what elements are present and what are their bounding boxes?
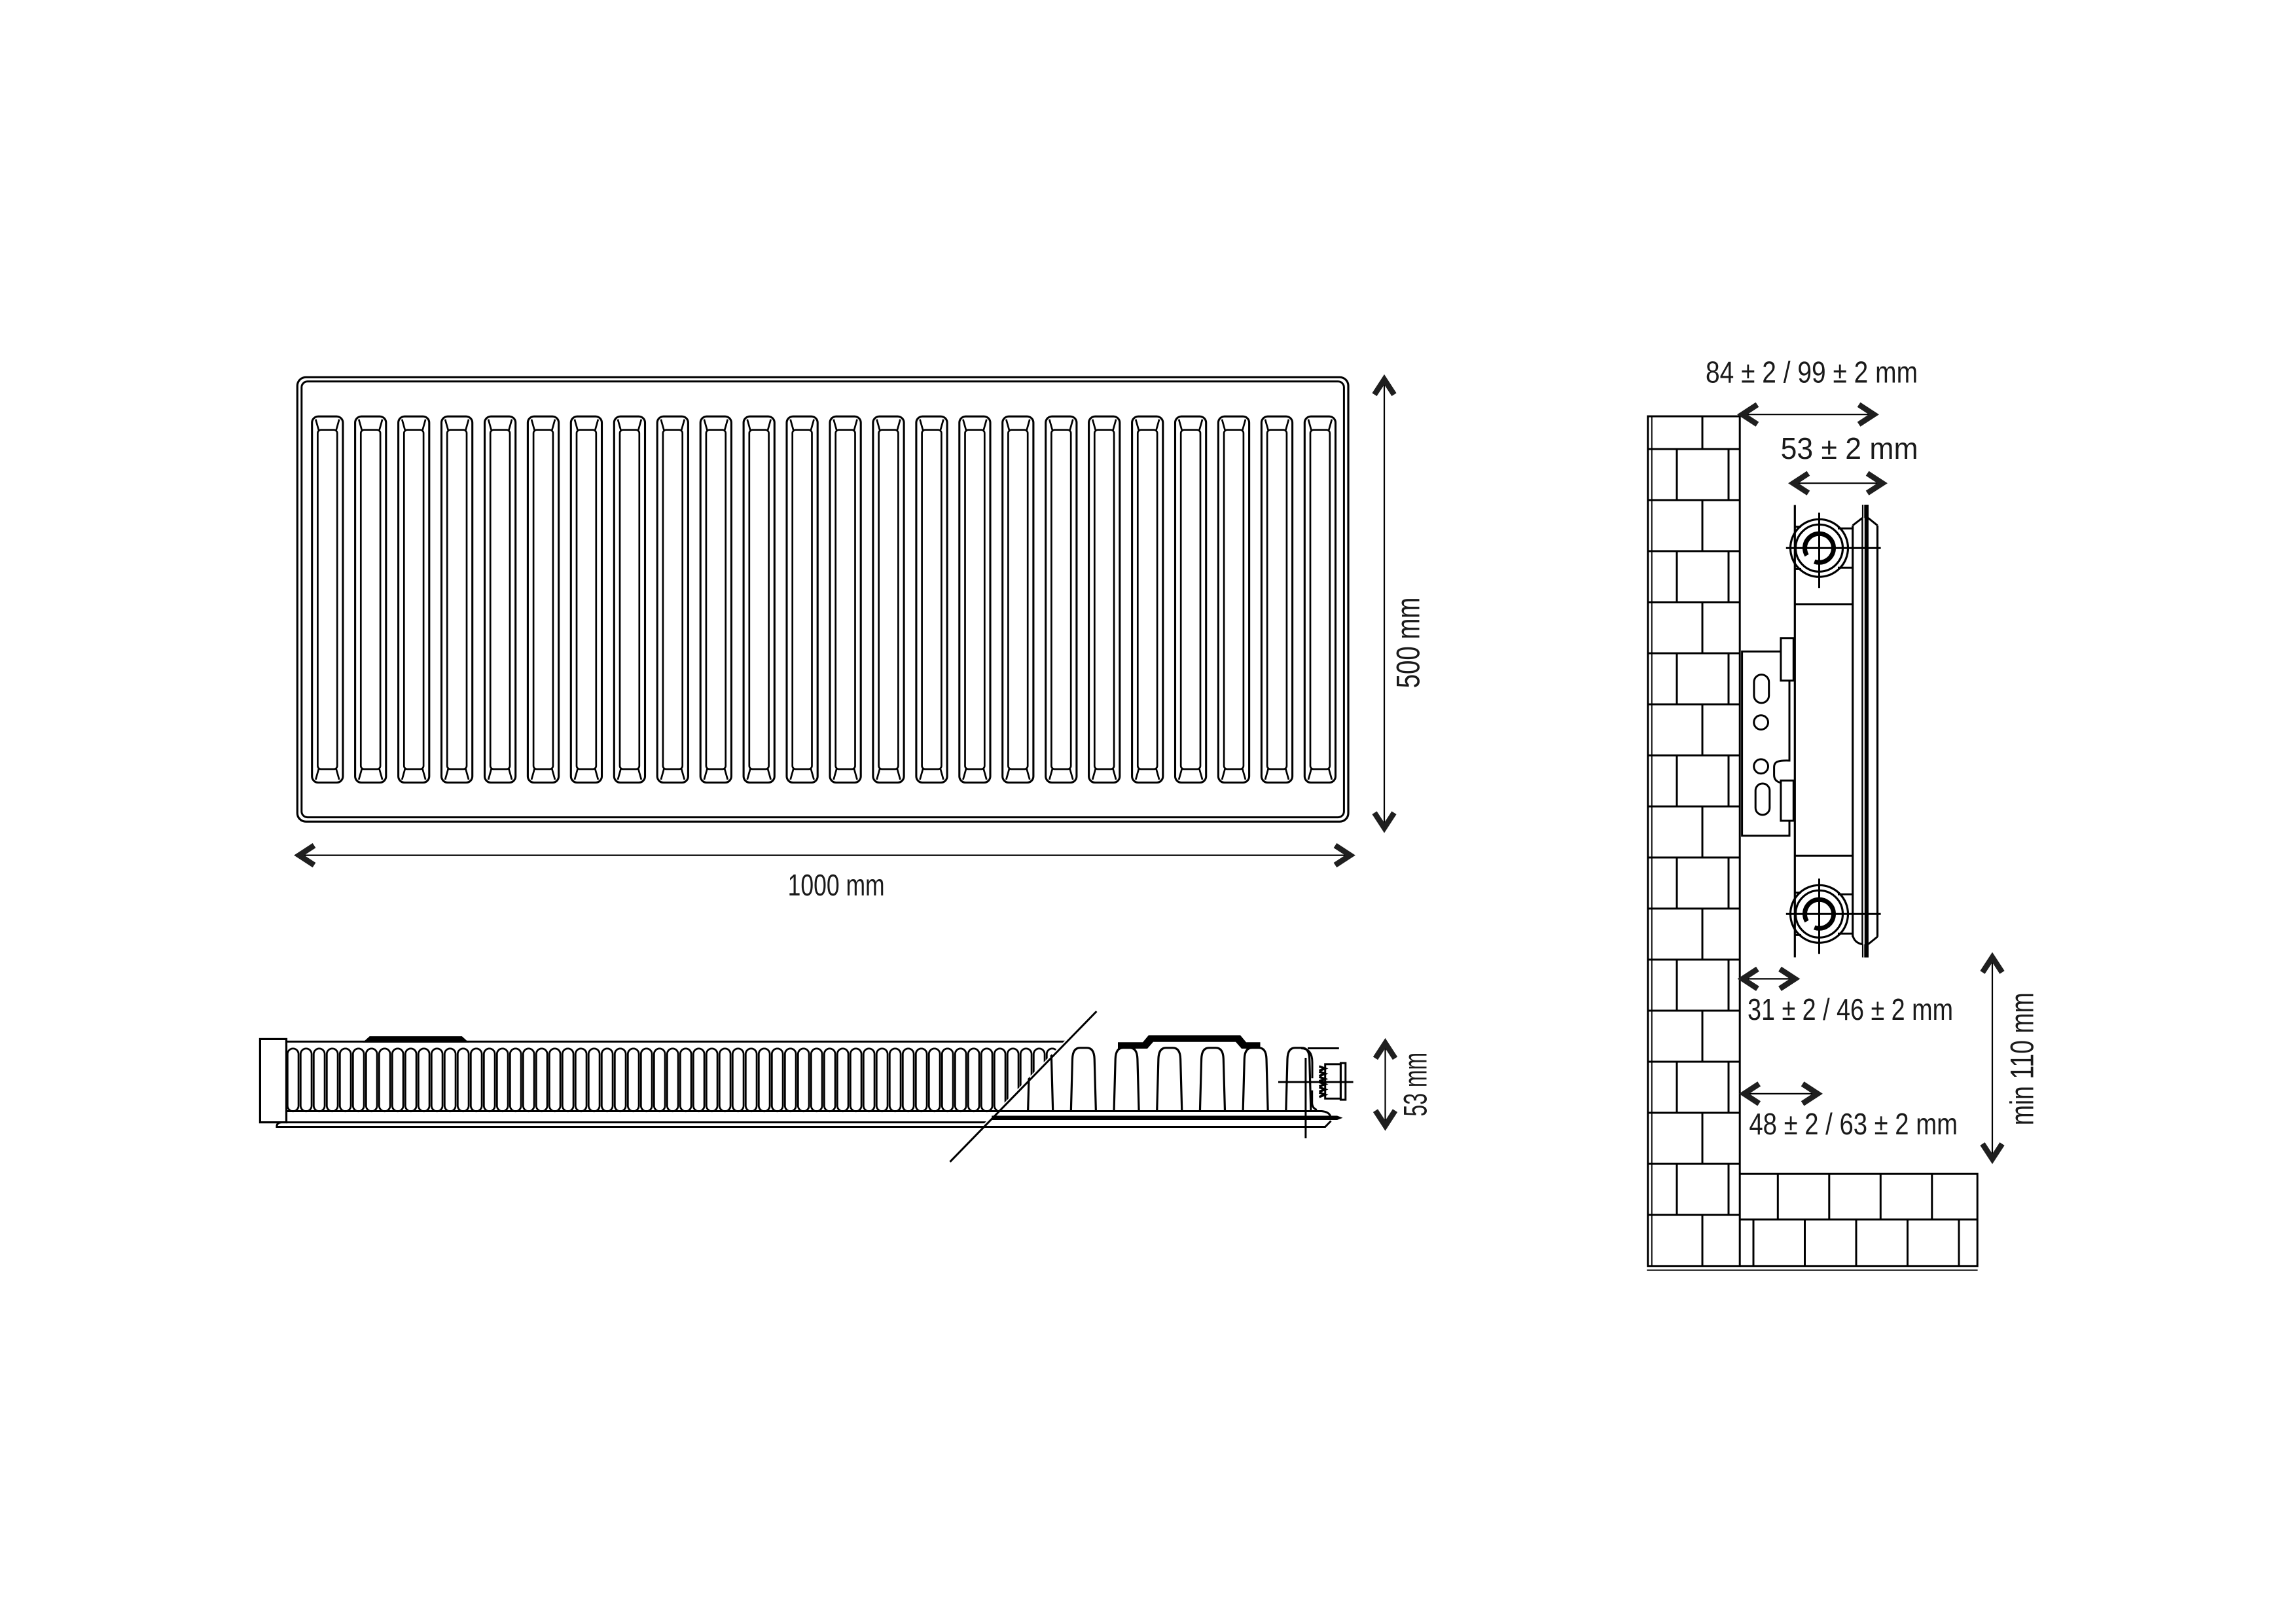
svg-text:53 ± 2 mm: 53 ± 2 mm xyxy=(1781,431,1918,465)
svg-text:53 mm: 53 mm xyxy=(1397,1053,1433,1117)
svg-text:84 ± 2 / 99 ± 2 mm: 84 ± 2 / 99 ± 2 mm xyxy=(1706,355,1918,389)
svg-text:48 ± 2 / 63 ± 2 mm: 48 ± 2 / 63 ± 2 mm xyxy=(1749,1107,1958,1141)
svg-text:31 ± 2 / 46 ± 2 mm: 31 ± 2 / 46 ± 2 mm xyxy=(1748,992,1953,1026)
svg-text:min 110 mm: min 110 mm xyxy=(2003,992,2040,1125)
svg-text:1000 mm: 1000 mm xyxy=(788,868,885,902)
svg-text:500 mm: 500 mm xyxy=(1390,598,1427,689)
